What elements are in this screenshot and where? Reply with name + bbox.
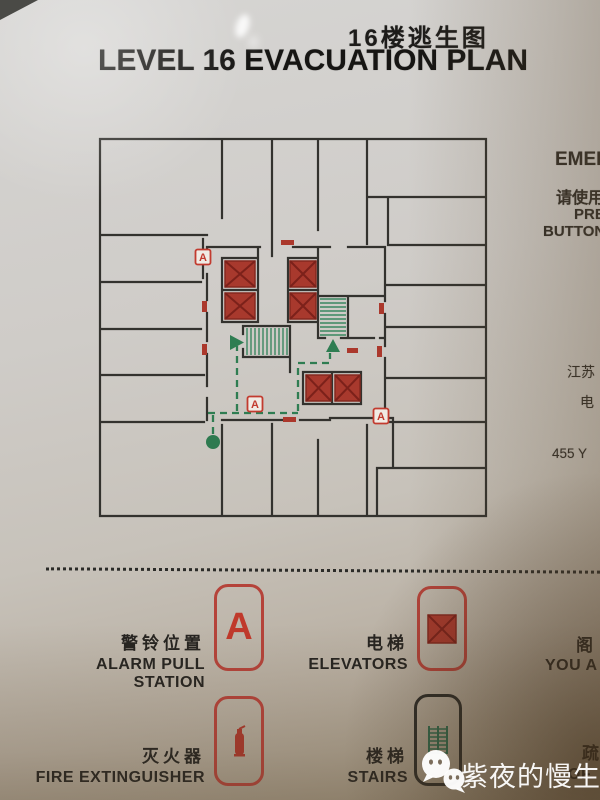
legend-alarm-label: 警铃位置 ALARM PULL STATION [30,629,205,692]
floor-plan: A A A [95,135,495,520]
door-marker [347,348,358,353]
route-start-dot [206,435,220,449]
legend-you-are-here-en: YOU A [545,657,600,675]
legend-elevators-label-zh: 电梯 [300,629,408,654]
alarm-marker: A [248,397,263,412]
legend-stairs-label: 楼梯 STAIRS [300,742,408,787]
door-marker [283,417,296,422]
alarm-marker: A [196,250,211,265]
route-arrow-up-icon [326,339,340,352]
alarm-marker: A [374,409,389,424]
legend-you-are-here-label: 阁 YOU A [545,631,600,675]
legend-divider [46,567,600,573]
elevators-symbol [417,586,467,671]
legend-extinguisher-label: 灭火器 FIRE EXTINGUISHER [30,742,205,787]
glare-spot [233,13,253,40]
fire-extinguisher-symbol [214,696,264,786]
watermark-text: 紫夜的慢生活 [461,755,600,794]
legend-elevators-label-en: ELEVATORS [300,656,408,674]
side-note-button: BUTTON [543,223,600,240]
svg-text:A: A [251,399,259,411]
side-note-press: PRE [574,206,600,223]
side-note-instruction-zh: 请使用 [556,184,600,208]
side-note-address: 455 Y [552,446,587,461]
glare-spot [249,36,258,48]
legend-you-are-here-zh: 阁 [545,631,600,656]
door-marker [377,346,382,357]
legend-extinguisher-label-en: FIRE EXTINGUISHER [30,769,205,787]
legend-stairs-label-en: STAIRS [300,769,408,787]
door-marker [379,303,384,314]
page-title: LEVEL 16 EVACUATION PLAN [98,44,508,78]
photo-corner-background [0,0,38,20]
door-marker [202,344,207,355]
elevator-icon [427,614,457,644]
side-note-region: 江苏 [567,362,595,382]
alarm-pull-station-symbol: A [214,584,264,671]
side-note-phone: 电 [580,392,594,412]
legend-extinguisher-label-zh: 灭火器 [30,742,205,767]
legend-stairs-label-zh: 楼梯 [300,742,408,767]
legend-alarm-label-en: ALARM PULL STATION [30,656,205,692]
legend-alarm-label-zh: 警铃位置 [30,629,205,654]
svg-text:A: A [377,411,385,423]
legend-elevators-label: 电梯 ELEVATORS [300,629,408,674]
stairs-icon [247,328,287,355]
stairs-icon [320,299,346,335]
floor-plan-walls [100,139,486,516]
evacuation-plan-photo: 16楼逃生图 LEVEL 16 EVACUATION PLAN [0,0,600,800]
door-marker [281,240,294,245]
svg-text:A: A [199,252,207,264]
door-marker [202,301,207,312]
alarm-letter: A [225,606,252,649]
fire-extinguisher-icon [226,723,252,759]
side-note-emergency: EMER [555,149,600,171]
